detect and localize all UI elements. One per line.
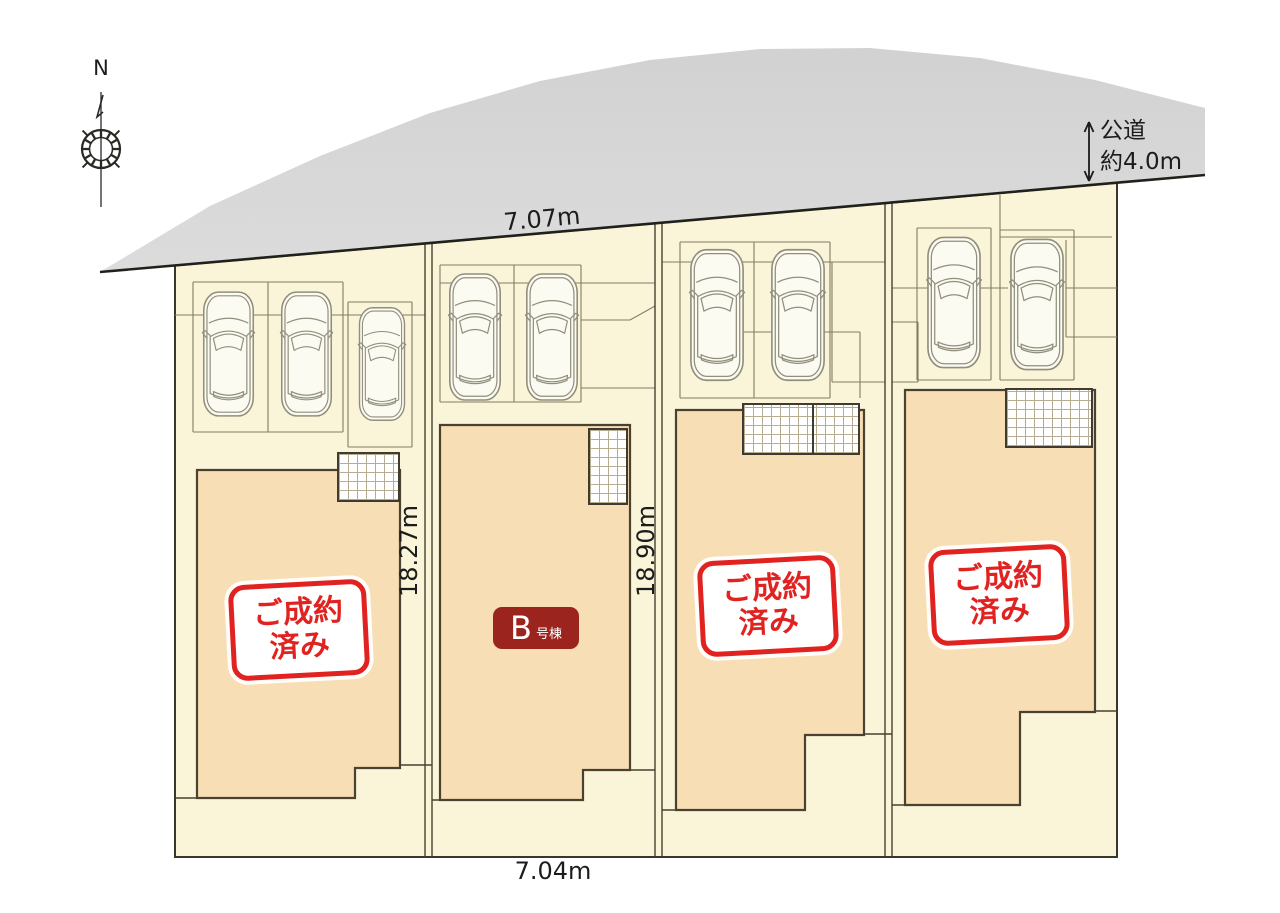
sold-badge-lot-4: ご成約 済み bbox=[928, 543, 1071, 646]
sold-badge-line2: 済み bbox=[935, 592, 1065, 632]
compass-arrow bbox=[97, 95, 103, 117]
car-icon bbox=[358, 308, 406, 421]
dimension-depth-lot1: 18.27m bbox=[395, 491, 421, 611]
tile-terrace-lot-1 bbox=[337, 452, 400, 502]
unit-badge-lot-2: B 号棟 bbox=[493, 607, 579, 649]
sold-badge-lot-3: ご成約 済み bbox=[697, 554, 840, 657]
tile-terrace-lot-4 bbox=[1005, 388, 1093, 448]
tile-terrace-lot-2 bbox=[588, 428, 628, 505]
road-width-label-line2: 約4.0m bbox=[1100, 147, 1182, 178]
dimension-depth-lot2: 18.90m bbox=[632, 491, 658, 611]
dimension-bottom-width: 7.04m bbox=[493, 857, 613, 885]
tile-terrace-lot-3 bbox=[742, 403, 860, 455]
car-icon bbox=[770, 250, 825, 381]
road-width-label: 公道 約4.0m bbox=[1100, 116, 1182, 178]
car-icon bbox=[689, 250, 744, 381]
unit-badge-letter: B bbox=[510, 612, 532, 644]
road-width-arrow bbox=[1085, 122, 1094, 181]
site-plan-drawing bbox=[0, 0, 1280, 913]
car-icon bbox=[448, 274, 501, 400]
car-icon bbox=[280, 292, 332, 416]
car-icon bbox=[1010, 239, 1065, 369]
site-plan-canvas: ご成約 済み B 号棟 ご成約 済み ご成約 済み 7.07m 7.04m 18… bbox=[0, 0, 1280, 913]
road-width-label-line1: 公道 bbox=[1100, 116, 1182, 147]
car-icon bbox=[927, 237, 982, 367]
car-icon bbox=[525, 274, 578, 400]
sold-badge-line2: 済み bbox=[235, 627, 365, 667]
tile-divider bbox=[812, 405, 814, 453]
sold-badge-lot-1: ご成約 済み bbox=[228, 578, 371, 681]
sold-badge-line2: 済み bbox=[704, 603, 834, 643]
compass-rose bbox=[82, 92, 120, 207]
car-icon bbox=[202, 292, 254, 416]
compass-north-label: N bbox=[89, 56, 113, 80]
unit-badge-suffix: 号棟 bbox=[536, 615, 562, 642]
